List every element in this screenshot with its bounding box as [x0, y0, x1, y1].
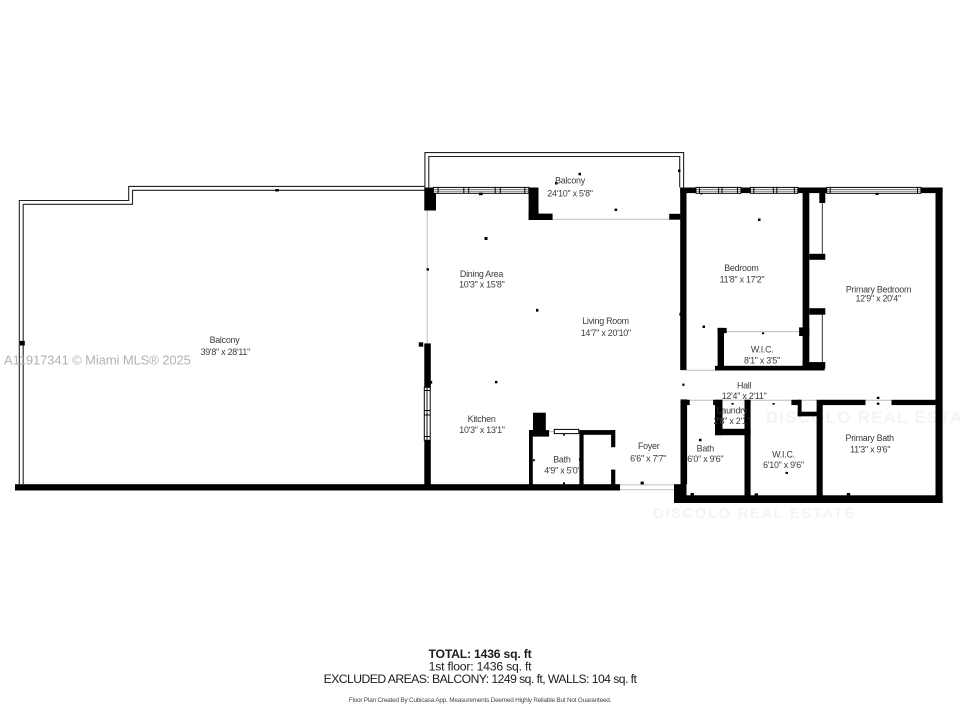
svg-text:11'3" x 9'6": 11'3" x 9'6" — [850, 445, 890, 455]
svg-text:Floor Plan Created By Cubicasa: Floor Plan Created By Cubicasa App. Meas… — [349, 697, 612, 704]
svg-text:Kitchen: Kitchen — [468, 414, 496, 424]
svg-text:10'3" x 13'1": 10'3" x 13'1" — [459, 425, 505, 435]
svg-text:12'4" x 2'11": 12'4" x 2'11" — [722, 391, 767, 401]
svg-text:4'9" x 5'0": 4'9" x 5'0" — [544, 466, 580, 476]
svg-text:Bath: Bath — [553, 454, 571, 464]
svg-text:2'8" x 2'1": 2'8" x 2'1" — [713, 416, 749, 426]
svg-text:10'3" x 15'8": 10'3" x 15'8" — [459, 280, 505, 290]
svg-text:6'6" x 7'7": 6'6" x 7'7" — [630, 454, 666, 464]
svg-text:24'10" x 5'8": 24'10" x 5'8" — [547, 189, 593, 199]
svg-text:Foyer: Foyer — [638, 441, 660, 451]
svg-text:6'0" x 9'6": 6'0" x 9'6" — [687, 454, 723, 464]
svg-text:6'10" x 9'6": 6'10" x 9'6" — [763, 460, 804, 470]
svg-text:W.I.C.: W.I.C. — [772, 449, 795, 459]
svg-text:11'8" x 17'2": 11'8" x 17'2" — [720, 275, 765, 285]
svg-text:Balcony: Balcony — [555, 176, 586, 186]
svg-text:39'8" x 28'11": 39'8" x 28'11" — [201, 347, 251, 357]
svg-text:DISCOLO REAL ESTATE: DISCOLO REAL ESTATE — [766, 409, 960, 427]
svg-text:EXCLUDED AREAS: BALCONY: 1249: EXCLUDED AREAS: BALCONY: 1249 sq. ft, WA… — [324, 672, 638, 686]
svg-text:Primary Bath: Primary Bath — [846, 433, 895, 443]
svg-text:14'7" x 20'10": 14'7" x 20'10" — [581, 328, 631, 338]
svg-text:W.I.C.: W.I.C. — [751, 344, 774, 354]
svg-text:A11917341 © Miami MLS® 2025: A11917341 © Miami MLS® 2025 — [4, 353, 191, 368]
svg-text:Living Room: Living Room — [582, 316, 629, 326]
svg-text:Bedroom: Bedroom — [724, 263, 758, 273]
svg-text:DISCOLO REAL ESTATE: DISCOLO REAL ESTATE — [653, 505, 856, 522]
svg-text:Laundry: Laundry — [717, 405, 748, 415]
svg-text:Balcony: Balcony — [210, 335, 241, 345]
svg-text:8'1" x 3'5": 8'1" x 3'5" — [744, 355, 780, 365]
svg-text:Hall: Hall — [737, 381, 752, 391]
svg-text:Bath: Bath — [697, 444, 715, 454]
svg-text:12'9" x 20'4": 12'9" x 20'4" — [855, 294, 901, 304]
svg-text:Dining Area: Dining Area — [460, 269, 503, 279]
